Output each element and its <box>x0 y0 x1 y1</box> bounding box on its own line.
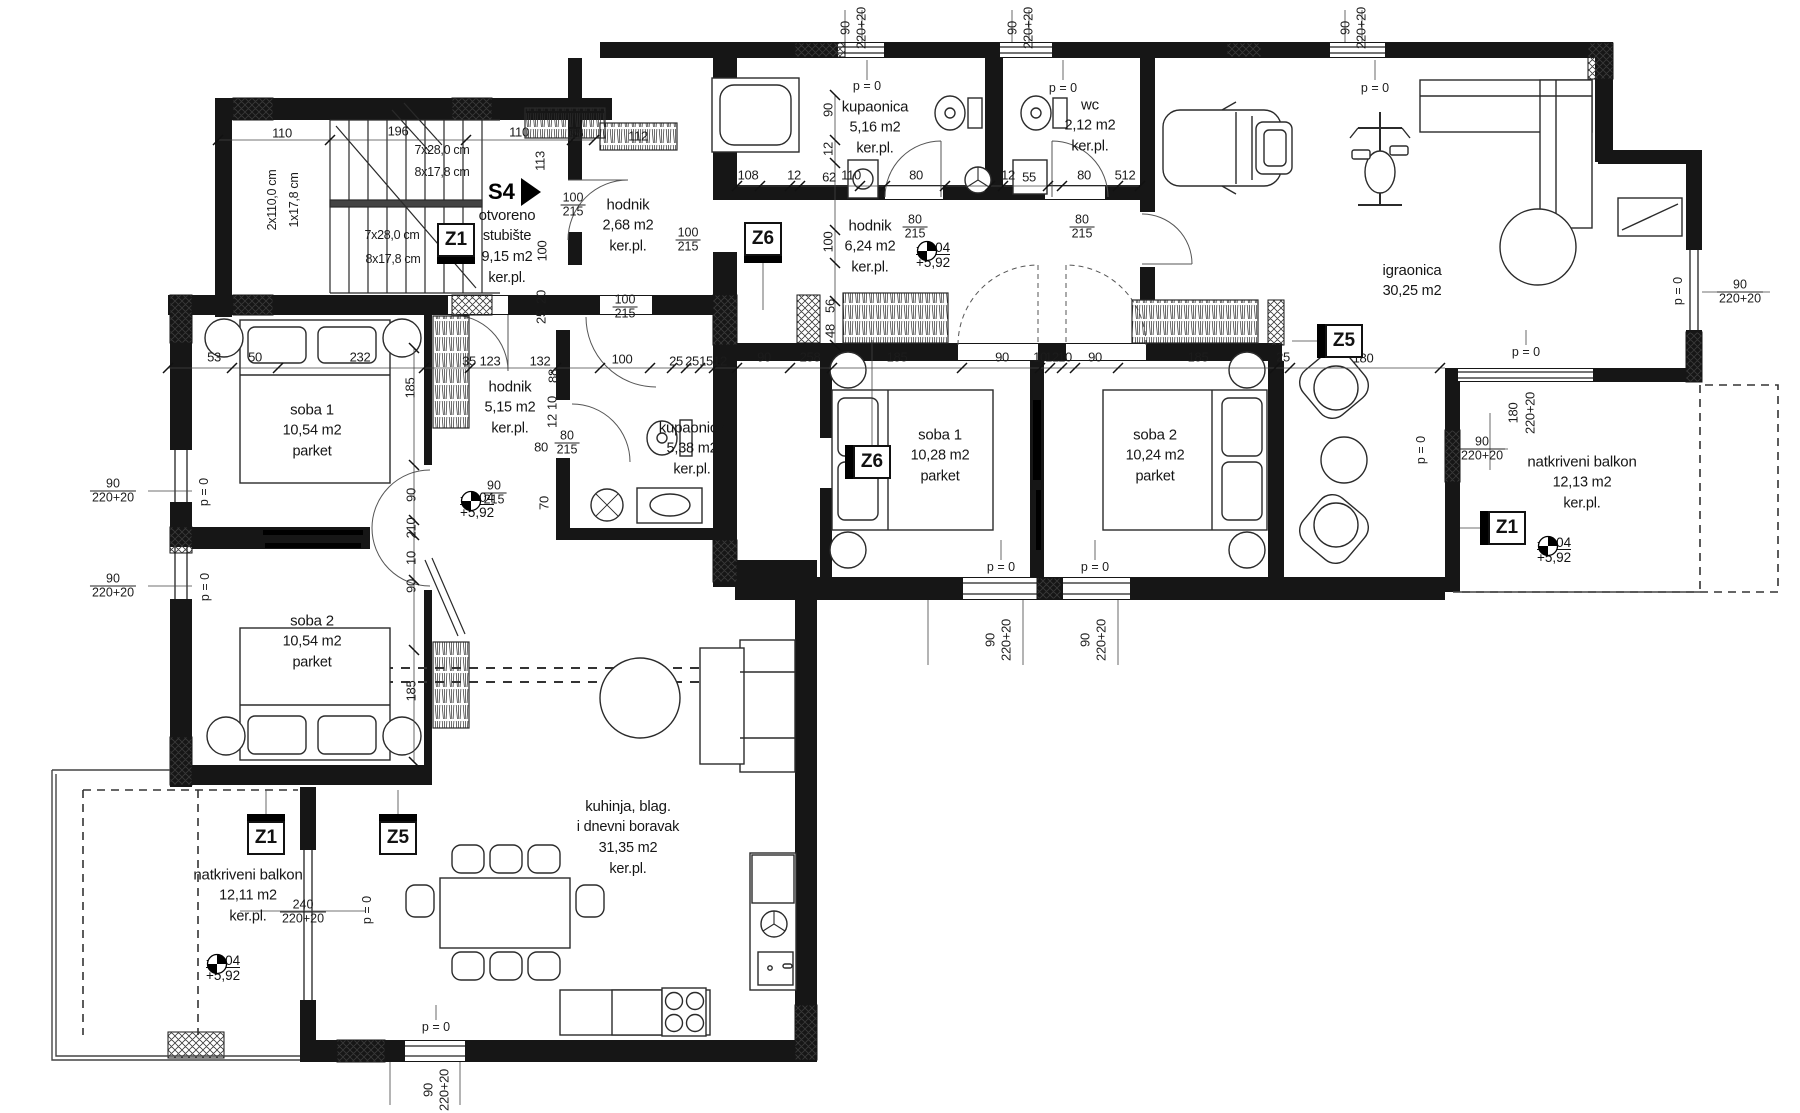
room-label: kupaonica5,38 m2ker.pl. <box>659 418 726 481</box>
dimension-label: 20 <box>534 290 549 304</box>
dimension-label: 185 <box>887 350 908 365</box>
room-label: soba 210,54 m2parket <box>283 611 342 674</box>
window-marker-z5: Z5 <box>1325 324 1363 358</box>
dimension-label: 25 <box>534 310 549 324</box>
dimension-label: 70 <box>537 496 552 510</box>
datum-p0-label: p = 0 <box>197 478 211 506</box>
datum-p0-label: p = 0 <box>360 896 374 924</box>
dimension-fraction: 90220+20 <box>90 478 136 505</box>
room-label: igraonica30,25 m2 <box>1382 260 1441 302</box>
dimension-label: 185 <box>403 378 418 399</box>
dimension-label: 90 <box>838 21 853 35</box>
dimension-label: 185 <box>1188 350 1209 365</box>
dimension-label: 56 <box>823 299 838 313</box>
dimension-label: 90 <box>1088 350 1102 365</box>
dimension-label: 55 <box>1022 170 1036 185</box>
room-label: hodnik2,68 m2ker.pl. <box>603 195 654 258</box>
dimension-label: 110 <box>272 126 292 141</box>
dimension-label: 12 <box>545 414 560 428</box>
dimension-fraction: 80215 <box>1070 214 1095 241</box>
dimension-label: 10 <box>545 396 560 410</box>
dimension-label: 100 <box>535 241 550 262</box>
dimension-label: 2x110,0 cm <box>265 170 279 231</box>
dimension-label: 90 <box>1005 21 1020 35</box>
dimension-label: 12 <box>1045 350 1059 365</box>
room-label: hodnik6,24 m2ker.pl. <box>845 216 896 279</box>
room-label: otvorenostubište9,15 m2ker.pl. <box>479 205 536 289</box>
datum-p0-label: p = 0 <box>1361 81 1389 95</box>
datum-p0-label: p = 0 <box>422 1020 450 1034</box>
dimension-label: 112 <box>628 129 648 144</box>
dimension-label: 232 <box>350 350 371 365</box>
dimension-label: 12 <box>1001 168 1015 183</box>
floor-plan: otvorenostubište9,15 m2ker.pl.hodnik2,68… <box>0 0 1800 1113</box>
window-marker-z1: Z1 <box>1488 511 1526 545</box>
dimension-label: 90 <box>404 488 419 502</box>
dimension-label: 12 <box>787 168 801 183</box>
room-label: wc2,12 m2ker.pl. <box>1065 95 1116 158</box>
dimension-fraction: 240220+20 <box>280 899 326 926</box>
dimension-label: 258 <box>800 350 821 365</box>
dimension-fraction: 100215 <box>561 192 586 219</box>
unit-arrow-icon <box>521 178 541 206</box>
dimension-label: 100 <box>612 352 633 367</box>
dimension-label: 1x17,8 cm <box>287 173 301 228</box>
dimension-label: 90 <box>821 103 836 117</box>
dimension-label: 25 <box>1276 350 1290 365</box>
unit-code: S4 <box>488 179 515 205</box>
dimension-fraction: 80215 <box>903 214 928 241</box>
dimension-label: 220+20 <box>1021 7 1036 49</box>
room-label: hodnik5,15 m2ker.pl. <box>485 377 536 440</box>
dimension-label: 90 <box>983 633 998 647</box>
dimension-label: 220+20 <box>437 1069 452 1111</box>
dimension-label: 90 <box>1078 633 1093 647</box>
dimension-label: 15 <box>699 354 713 369</box>
datum-p0-label: p = 0 <box>1414 436 1428 464</box>
dimension-label: 110 <box>841 168 861 183</box>
dimension-label: 108 <box>738 168 759 183</box>
dimension-label: 80 <box>909 168 923 183</box>
dimension-fraction: 100215 <box>676 227 701 254</box>
dimension-label: 123 <box>480 354 501 369</box>
dimension-fraction: 80215 <box>555 430 580 457</box>
room-label: soba 210,24 m2parket <box>1126 425 1185 488</box>
unit-label: S4 <box>488 178 541 206</box>
dimension-label: 196 <box>388 124 409 139</box>
window-marker-z1: Z1 <box>437 223 475 257</box>
window-marker-z6: Z6 <box>853 445 891 479</box>
dimension-label: 132 <box>530 354 551 369</box>
datum-p0-label: p = 0 <box>1671 277 1685 305</box>
dimension-label: 90 <box>1338 21 1353 35</box>
room-label: kuhinja, blag.i dnevni boravak31,35 m2ke… <box>577 796 679 880</box>
dimension-label: 62 <box>822 170 836 185</box>
dimension-label: 110 <box>509 125 529 140</box>
datum-p0-label: p = 0 <box>198 573 212 601</box>
dimension-label: 12 <box>713 354 727 369</box>
datum-p0-label: p = 0 <box>853 79 881 93</box>
dimension-label: 90 <box>995 350 1009 365</box>
dimension-label: 7x28,0 cm <box>415 143 470 157</box>
dimension-label: 25 <box>669 354 683 369</box>
level-marker: +6,04+5,92 <box>206 953 240 983</box>
dimension-label: 7x28,0 cm <box>365 228 420 242</box>
dimension-label: 35 <box>462 354 476 369</box>
dimension-label: 180 <box>1506 403 1521 424</box>
level-marker: +6,04+5,92 <box>916 240 950 270</box>
room-label: kupaonica5,16 m2ker.pl. <box>842 97 909 160</box>
dimension-label: 25 <box>569 126 583 141</box>
dimension-label: 185 <box>404 681 419 702</box>
benchmark-icon <box>460 490 482 512</box>
dimension-fraction: 100215 <box>613 294 638 321</box>
dimension-label: 113 <box>533 151 548 171</box>
room-label: natkriveni balkon12,13 m2ker.pl. <box>1527 452 1636 515</box>
dimension-fraction: 90220+20 <box>1717 279 1763 306</box>
plan-labels: otvorenostubište9,15 m2ker.pl.hodnik2,68… <box>0 0 1800 1113</box>
dimension-label: 90 <box>404 579 419 593</box>
dimension-label: 220+20 <box>1354 7 1369 49</box>
dimension-label: 12 <box>821 142 836 156</box>
dimension-label: 88 <box>546 369 561 383</box>
dimension-label: 220+20 <box>854 7 869 49</box>
dimension-label: 8x17,8 cm <box>415 165 470 179</box>
datum-p0-label: p = 0 <box>1049 81 1077 95</box>
dimension-label: 50 <box>248 350 262 365</box>
window-marker-z1: Z1 <box>247 821 285 855</box>
room-label: soba 110,28 m2parket <box>911 425 970 488</box>
dimension-label: 90 <box>757 350 771 365</box>
dimension-label: 220+20 <box>1094 619 1109 661</box>
benchmark-icon <box>1537 535 1559 557</box>
datum-p0-label: p = 0 <box>1081 560 1109 574</box>
dimension-label: 90 <box>421 1083 436 1097</box>
dimension-fraction: 90220+20 <box>1459 436 1505 463</box>
dimension-label: 48 <box>823 324 838 338</box>
room-label: soba 110,54 m2parket <box>283 400 342 463</box>
window-marker-z5: Z5 <box>379 821 417 855</box>
dimension-label: 80 <box>1077 168 1091 183</box>
level-marker: +6,04+5,92 <box>1537 535 1571 565</box>
dimension-fraction: 90220+20 <box>90 573 136 600</box>
window-marker-z6: Z6 <box>744 222 782 256</box>
datum-p0-label: p = 0 <box>1512 345 1540 359</box>
dimension-label: 512 <box>1115 168 1136 183</box>
dimension-label: 25 <box>685 354 699 369</box>
dimension-label: 10 <box>1058 350 1072 365</box>
dimension-label: 8x17,8 cm <box>366 252 421 266</box>
dimension-label: 210 <box>404 518 419 539</box>
dimension-label: 53 <box>207 350 221 365</box>
dimension-label: 80 <box>534 440 548 455</box>
benchmark-icon <box>916 240 938 262</box>
datum-p0-label: p = 0 <box>987 560 1015 574</box>
dimension-label: 220+20 <box>1523 392 1538 434</box>
dimension-label: 100 <box>821 232 836 253</box>
dimension-label: 220+20 <box>999 619 1014 661</box>
dimension-label: 10 <box>404 551 419 565</box>
level-marker: +6,04+5,92 <box>460 490 494 520</box>
benchmark-icon <box>206 953 228 975</box>
